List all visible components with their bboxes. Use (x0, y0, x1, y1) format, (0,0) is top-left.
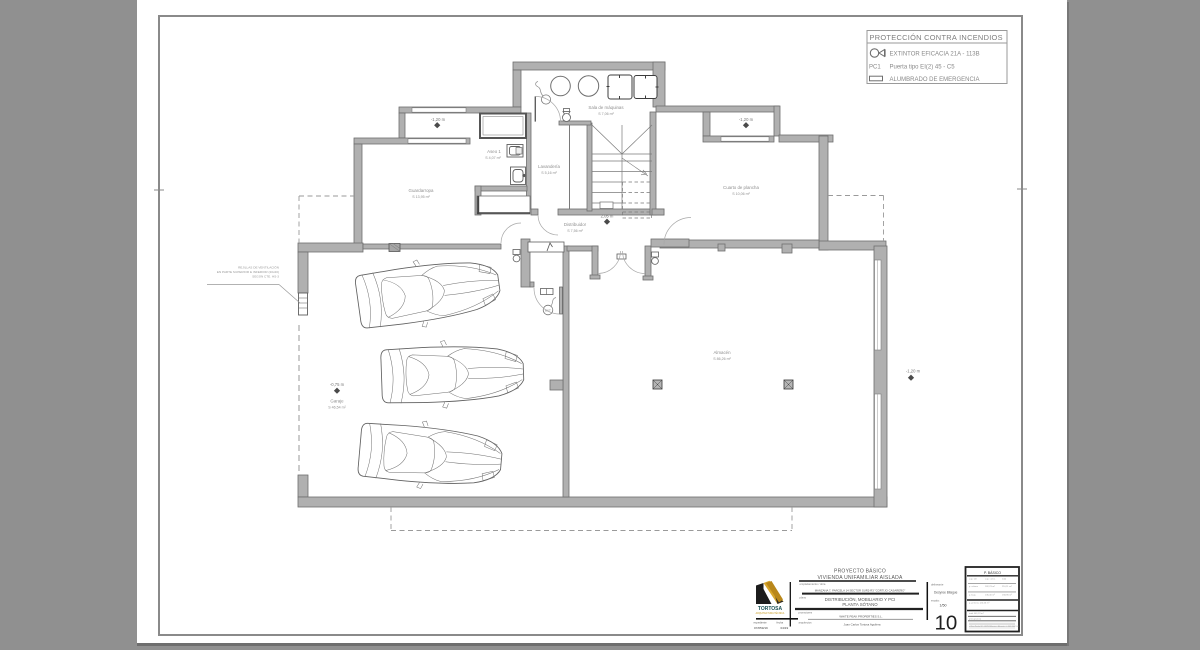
svg-text:S 4,07 m²: S 4,07 m² (485, 156, 501, 160)
svg-text:Guardarropa: Guardarropa (409, 188, 434, 193)
svg-text:total: total (1002, 577, 1007, 580)
svg-text:-1,20 m: -1,20 m (906, 369, 921, 374)
svg-text:p. baja: p. baja (969, 594, 976, 596)
svg-text:S 10,06 m²: S 10,06 m² (732, 192, 750, 196)
svg-text:S 5,16 m²: S 5,16 m² (541, 171, 557, 175)
svg-text:fecha: fecha (777, 620, 784, 624)
svg-text:158,96 m²: 158,96 m² (1002, 593, 1012, 596)
svg-text:S 7,56 m²: S 7,56 m² (567, 229, 583, 233)
svg-text:1/50: 1/50 (940, 603, 947, 607)
svg-text:TORTOSA: TORTOSA (758, 606, 783, 612)
svg-text:S 13,95 m²: S 13,95 m² (412, 195, 430, 199)
svg-text:Distribuidor: Distribuidor (564, 222, 587, 227)
svg-text:escala:: escala: (931, 598, 940, 602)
svg-text:presupuesto: presupuesto (969, 618, 982, 621)
svg-text:-0,75 m: -0,75 m (330, 382, 345, 387)
svg-text:182,23 m²: 182,23 m² (985, 585, 995, 588)
svg-text:emplazamiento / obra: emplazamiento / obra (800, 582, 826, 586)
svg-text:WHITE PEAK PROPERTIES S.L.: WHITE PEAK PROPERTIES S.L. (839, 614, 882, 618)
svg-text:SEGÚN CTE. HS-3: SEGÚN CTE. HS-3 (252, 275, 279, 279)
svg-text:sup. útil: sup. útil (969, 577, 977, 580)
svg-text:Garaje: Garaje (330, 399, 344, 404)
svg-text:total 443,19 m²: total 443,19 m² (969, 612, 984, 615)
svg-text:Puerta tipo EI(2) 45 - C5: Puerta tipo EI(2) 45 - C5 (890, 65, 956, 71)
svg-text:p. sótano: p. sótano (969, 585, 979, 588)
svg-text:-1,20 m: -1,20 m (739, 117, 754, 122)
svg-text:-1,20 m: -1,20 m (431, 117, 446, 122)
svg-text:Lavandería: Lavandería (538, 164, 561, 169)
svg-text:EN PARTE SUPERIOR E INFERIOR (: EN PARTE SUPERIOR E INFERIOR (20x20) (217, 270, 279, 274)
svg-text:04/19: 04/19 (781, 626, 789, 630)
svg-text:expediente: expediente (754, 620, 768, 624)
svg-text:PC1: PC1 (869, 65, 881, 71)
svg-text:Almacén: Almacén (713, 350, 731, 355)
svg-text:ALUMBRADO DE EMERGENCIA: ALUMBRADO DE EMERGENCIA (890, 77, 980, 83)
svg-text:ARQUITECTURA TÉCNICA: ARQUITECTURA TÉCNICA (756, 612, 785, 615)
svg-text:P. BÁSICO: P. BÁSICO (984, 571, 1001, 575)
svg-text:S 86,26 m²: S 86,26 m² (713, 357, 731, 361)
svg-text:S 7,06 m²: S 7,06 m² (598, 112, 614, 116)
svg-text:2,05 m: 2,05 m (601, 214, 614, 219)
svg-text:Juan Carlos Tortosa Aguilera: Juan Carlos Tortosa Aguilera (844, 622, 881, 626)
svg-text:136,40 m²: 136,40 m² (985, 593, 995, 596)
svg-text:Desyree Bilague: Desyree Bilague (934, 591, 958, 595)
svg-text:S 46,54 m²: S 46,54 m² (328, 406, 346, 410)
svg-text:EXTINTOR EFICACIA 21A - 113B: EXTINTOR EFICACIA 21A - 113B (890, 51, 980, 57)
svg-text:210,11 m²: 210,11 m² (1002, 585, 1012, 588)
svg-text:Cuarto de plancha: Cuarto de plancha (723, 185, 759, 190)
svg-text:promotores: promotores (799, 610, 813, 614)
svg-text:10: 10 (935, 612, 958, 635)
svg-text:plano: plano (800, 595, 807, 599)
svg-text:PLANTA SÓTANO: PLANTA SÓTANO (842, 602, 878, 607)
svg-text:c/ San Pedro 12 · 03724 Morair: c/ San Pedro 12 · 03724 Moraira · Alican… (969, 625, 1019, 628)
svg-text:Aseo 1: Aseo 1 (487, 149, 501, 154)
svg-text:sup. const.: sup. const. (985, 577, 996, 580)
svg-text:PROYECTO BÁSICO: PROYECTO BÁSICO (834, 568, 886, 575)
svg-text:delineante: delineante (931, 582, 944, 586)
svg-text:PROTECCIÓN CONTRA INCENDIOS: PROTECCIÓN CONTRA INCENDIOS (870, 33, 1003, 42)
svg-text:Sala de máquinas: Sala de máquinas (588, 105, 624, 110)
svg-text:MANZANA 7, PARCELA 14 SECTOR S: MANZANA 7, PARCELA 14 SECTOR SUR2-R3 "CO… (815, 587, 906, 592)
svg-text:07/059/19: 07/059/19 (754, 626, 768, 630)
svg-text:VIVIENDA UNIFAMILIAR AISLADA: VIVIENDA UNIFAMILIAR AISLADA (817, 575, 902, 581)
svg-text:arquitectos: arquitectos (799, 620, 813, 624)
svg-text:REJILLAS DE VENTILACIÓN: REJILLAS DE VENTILACIÓN (238, 265, 279, 270)
svg-text:p. primera 124,56 m²: p. primera 124,56 m² (969, 602, 990, 605)
